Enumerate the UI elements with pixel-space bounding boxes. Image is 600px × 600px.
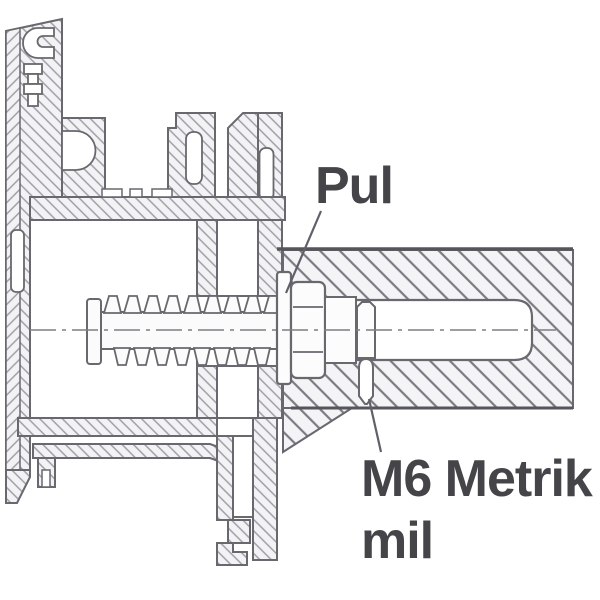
- label-m6-metric-stud: M6 Metrik mil: [361, 448, 592, 572]
- hook-lip: [217, 543, 247, 565]
- tab-b-slot: [186, 132, 202, 184]
- bottom-band-1: [18, 418, 217, 436]
- bottom-foot-notch: [42, 470, 50, 487]
- top-flange-band: [30, 197, 285, 220]
- bar-slot: [11, 230, 24, 292]
- inner-channel-lower: [217, 366, 258, 418]
- lower-right-column: [253, 418, 277, 560]
- block-a-notch: [62, 131, 96, 170]
- right-wall-slot: [260, 148, 274, 200]
- diagram-canvas: Pul M6 Metrik mil: [0, 0, 600, 600]
- label-m6-line1: M6 Metrik: [361, 448, 592, 510]
- lower-channel: [233, 436, 253, 517]
- top-column-c: [228, 113, 258, 197]
- lower-strip: [217, 436, 233, 520]
- label-m6-line2: mil: [361, 510, 592, 572]
- flange-ribs: [102, 189, 172, 197]
- bar-foot: [6, 470, 30, 503]
- wall-bottom-wedge: [283, 408, 352, 452]
- hook-cube: [228, 520, 250, 543]
- label-washer: Pul: [315, 156, 393, 216]
- inner-web-lower: [197, 366, 217, 418]
- screw-tip-flange: [87, 299, 101, 364]
- left-profile-group: [6, 19, 285, 565]
- inner-channel-upper: [217, 220, 258, 296]
- screw-threads-top: [104, 296, 281, 313]
- inner-web-upper: [197, 220, 217, 296]
- m6-stud-lower: [359, 359, 373, 404]
